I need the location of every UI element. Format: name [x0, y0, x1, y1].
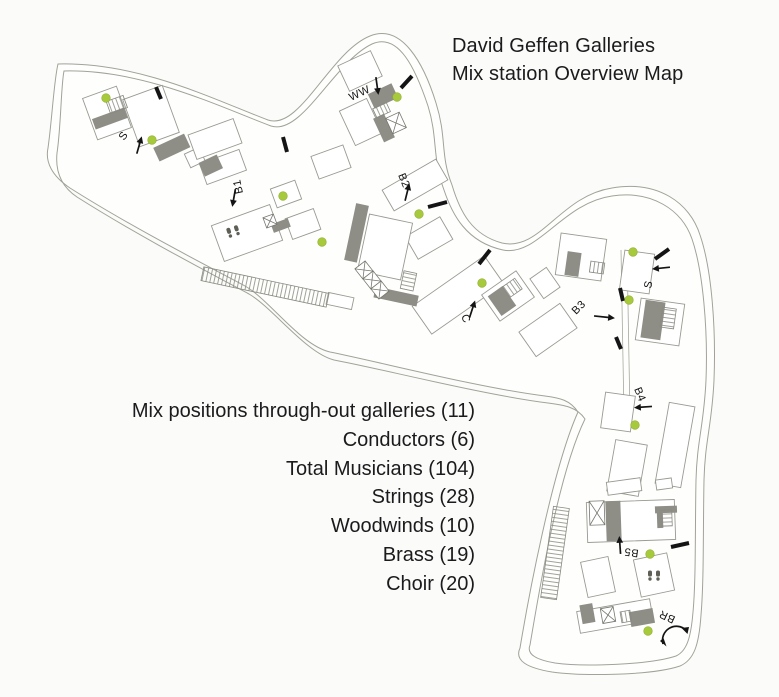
stat-brass: Brass (19) [45, 541, 475, 570]
mix-position-dot [318, 238, 327, 247]
title-line-1: David Geffen Galleries [452, 32, 683, 60]
title-line-2: Mix station Overview Map [452, 60, 683, 88]
mix-position-dot [631, 421, 640, 430]
stat-mix-positions: Mix positions through-out galleries (11) [45, 397, 475, 426]
mix-position-dot [148, 136, 157, 145]
label-b5: B5 [623, 545, 639, 559]
mix-position-dot [646, 550, 655, 559]
stat-strings: Strings (28) [45, 483, 475, 512]
stat-conductors: Conductors (6) [45, 426, 475, 455]
overview-map-page: S B1 WW B2 C S B3 B4 B5 BR David Geffen … [0, 0, 779, 697]
mix-position-dot [629, 248, 638, 257]
mix-position-dot [478, 279, 487, 288]
mix-position-dot [279, 192, 288, 201]
stat-total-musicians: Total Musicians (104) [45, 455, 475, 484]
stairs-icon [660, 307, 677, 329]
stairs-icon [620, 610, 632, 623]
map-title: David Geffen Galleries Mix station Overv… [452, 32, 683, 88]
stat-woodwinds: Woodwinds (10) [45, 512, 475, 541]
stat-choir: Choir (20) [45, 570, 475, 599]
mix-position-dot [102, 94, 111, 103]
mix-position-dot [415, 210, 424, 219]
mix-position-dot [393, 93, 402, 102]
stairs-icon [589, 261, 604, 274]
stats-list: Mix positions through-out galleries (11)… [45, 397, 475, 599]
stairs-icon [661, 510, 673, 526]
mix-position-dot [644, 627, 653, 636]
mix-position-dot [625, 296, 634, 305]
